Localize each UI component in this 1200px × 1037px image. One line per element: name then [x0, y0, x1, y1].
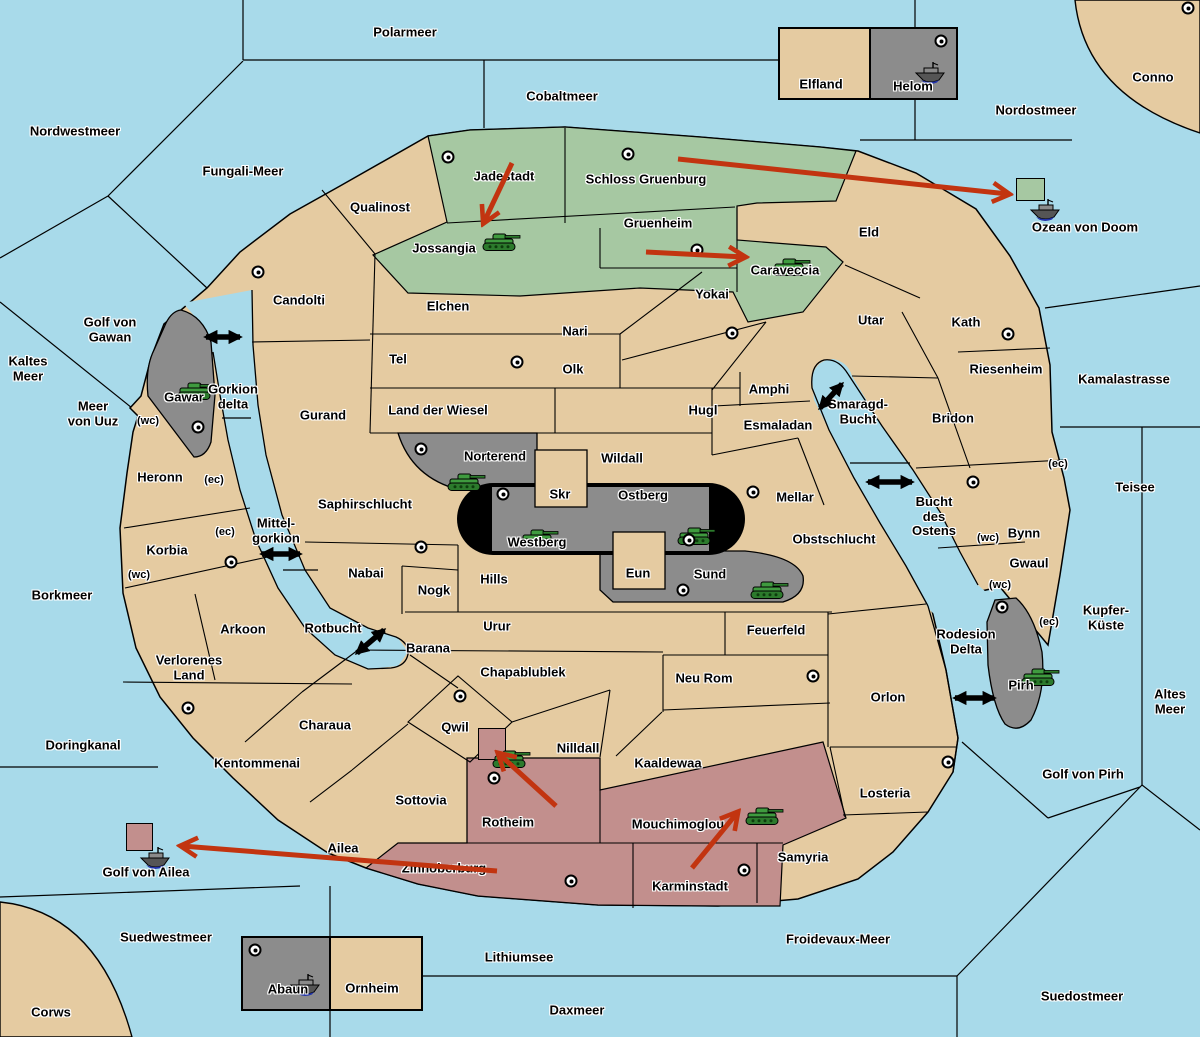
supply-center-icon: [192, 421, 205, 434]
map-canvas[interactable]: [0, 0, 1200, 1037]
skr-region: [535, 450, 587, 507]
supply-center-icon: [967, 476, 980, 489]
supply-center-icon: [182, 702, 195, 715]
supply-center-icon: [747, 486, 760, 499]
supply-center-icon: [225, 556, 238, 569]
supply-center-icon: [622, 148, 635, 161]
supply-center-icon: [497, 488, 510, 501]
game-map[interactable]: PolarmeerCobaltmeerNordwestmeerFungali-M…: [0, 0, 1200, 1037]
abaun-ornheim-box: [242, 937, 422, 1010]
supply-center-icon: [738, 864, 751, 877]
tank-icon: [480, 230, 522, 253]
ship-icon: [288, 972, 322, 998]
supply-center-icon: [677, 584, 690, 597]
supply-center-icon: [1002, 328, 1015, 341]
supply-center-icon: [691, 244, 704, 257]
supply-center-icon: [488, 772, 501, 785]
supply-center-icon: [565, 875, 578, 888]
supply-center-icon: [996, 601, 1009, 614]
tank-icon: [175, 379, 217, 402]
ship-icon: [913, 60, 947, 86]
tank-icon: [748, 578, 790, 601]
supply-center-icon: [415, 443, 428, 456]
supply-center-icon: [726, 327, 739, 340]
supply-center-icon: [454, 690, 467, 703]
supply-center-icon: [1182, 2, 1195, 15]
tank-icon: [490, 747, 532, 770]
ship-icon: [138, 845, 172, 871]
supply-center-icon: [935, 35, 948, 48]
supply-center-icon: [415, 541, 428, 554]
ship-icon: [1028, 197, 1062, 223]
supply-center-icon: [442, 151, 455, 164]
supply-center-icon: [942, 756, 955, 769]
supply-center-icon: [252, 266, 265, 279]
eun-region: [613, 532, 665, 589]
supply-center-icon: [683, 534, 696, 547]
supply-center-icon: [249, 944, 262, 957]
tank-icon: [1019, 665, 1061, 688]
tank-icon: [675, 524, 717, 547]
tank-icon: [743, 804, 785, 827]
supply-center-icon: [807, 670, 820, 683]
tank-icon: [445, 470, 487, 493]
tank-icon: [770, 255, 812, 278]
supply-center-icon: [511, 356, 524, 369]
tank-icon: [518, 526, 560, 549]
